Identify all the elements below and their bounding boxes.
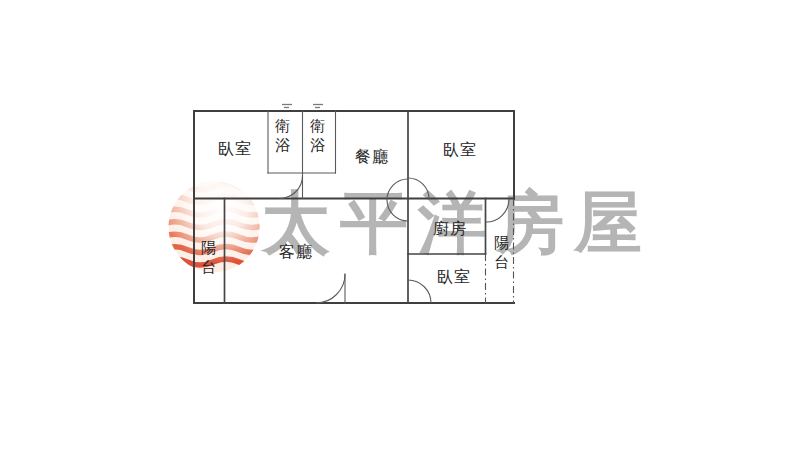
balcony-right-door-arc (486, 199, 510, 223)
bedroom-bottom-door-arc (408, 280, 431, 303)
room-label-living: 客廳 (274, 243, 318, 261)
vent-marks (282, 105, 323, 108)
dining-kitchen-door-arc (387, 179, 408, 221)
room-label-bedroom-top-right: 臥室 (438, 141, 482, 159)
door-leaves (303, 173, 346, 303)
entrance-door-arc (316, 274, 345, 303)
room-label-bath-left: 衛浴 (274, 117, 291, 155)
room-label-bath-right: 衛浴 (309, 117, 326, 155)
room-label-dining: 餐廳 (350, 148, 394, 166)
room-label-balcony-right: 陽台 (493, 234, 510, 272)
bedroom-top-right-door-arc (408, 178, 429, 199)
room-label-kitchen: 廚房 (428, 220, 472, 238)
room-label-bedroom-top-left: 臥室 (213, 140, 257, 158)
floorplan-walls (0, 0, 800, 450)
floorplan-image: 太平洋房屋 (0, 0, 800, 450)
bath-door-arc (280, 176, 303, 199)
room-label-balcony-left: 陽台 (200, 239, 217, 277)
room-label-bedroom-bottom: 臥室 (432, 268, 476, 286)
